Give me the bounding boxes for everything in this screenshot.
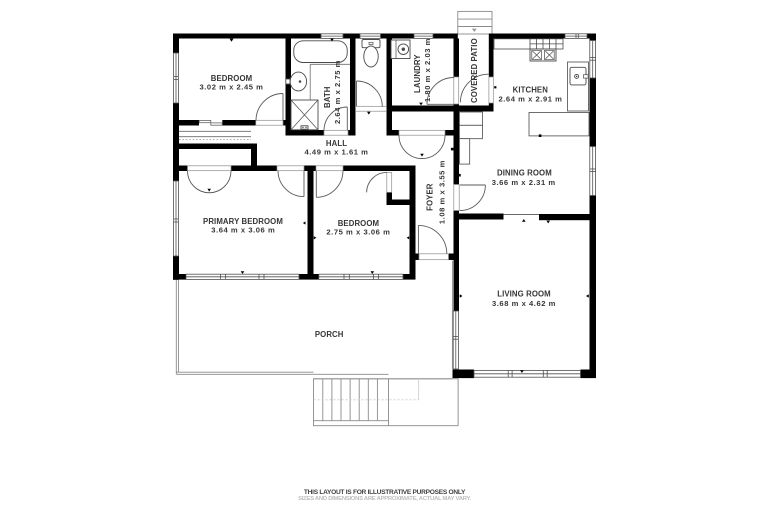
svg-text:BATH: BATH — [323, 86, 332, 108]
svg-text:KITCHEN: KITCHEN — [513, 85, 549, 94]
svg-text:2.75 m x 3.06 m: 2.75 m x 3.06 m — [326, 228, 390, 237]
svg-text:3.68 m x 4.62 m: 3.68 m x 4.62 m — [492, 299, 556, 308]
svg-text:1.80 m x 2.03 m: 1.80 m x 2.03 m — [423, 38, 432, 102]
svg-text:2.64 m x 2.75 m: 2.64 m x 2.75 m — [333, 60, 342, 124]
svg-text:PRIMARY BEDROOM: PRIMARY BEDROOM — [203, 217, 283, 226]
svg-text:COVERED PATIO: COVERED PATIO — [470, 38, 479, 103]
svg-text:2.64 m x 2.91 m: 2.64 m x 2.91 m — [499, 94, 563, 103]
svg-text:SIZES AND DIMENSIONS ARE APPRO: SIZES AND DIMENSIONS ARE APPROXIMATE, AC… — [298, 496, 471, 502]
svg-text:PORCH: PORCH — [315, 330, 344, 339]
svg-text:DINING ROOM: DINING ROOM — [497, 169, 552, 178]
svg-text:3.02 m x 2.45 m: 3.02 m x 2.45 m — [200, 83, 264, 92]
svg-text:LIVING ROOM: LIVING ROOM — [497, 290, 551, 299]
svg-text:3.64 m x 3.06 m: 3.64 m x 3.06 m — [211, 226, 275, 235]
svg-text:3.66 m x 2.31 m: 3.66 m x 2.31 m — [492, 178, 556, 187]
svg-text:4.49 m x 1.61 m: 4.49 m x 1.61 m — [305, 148, 369, 157]
svg-text:FOYER: FOYER — [425, 183, 434, 211]
svg-text:1.08 m x 3.55 m: 1.08 m x 3.55 m — [437, 160, 446, 224]
svg-text:LAUNDRY: LAUNDRY — [413, 54, 422, 93]
